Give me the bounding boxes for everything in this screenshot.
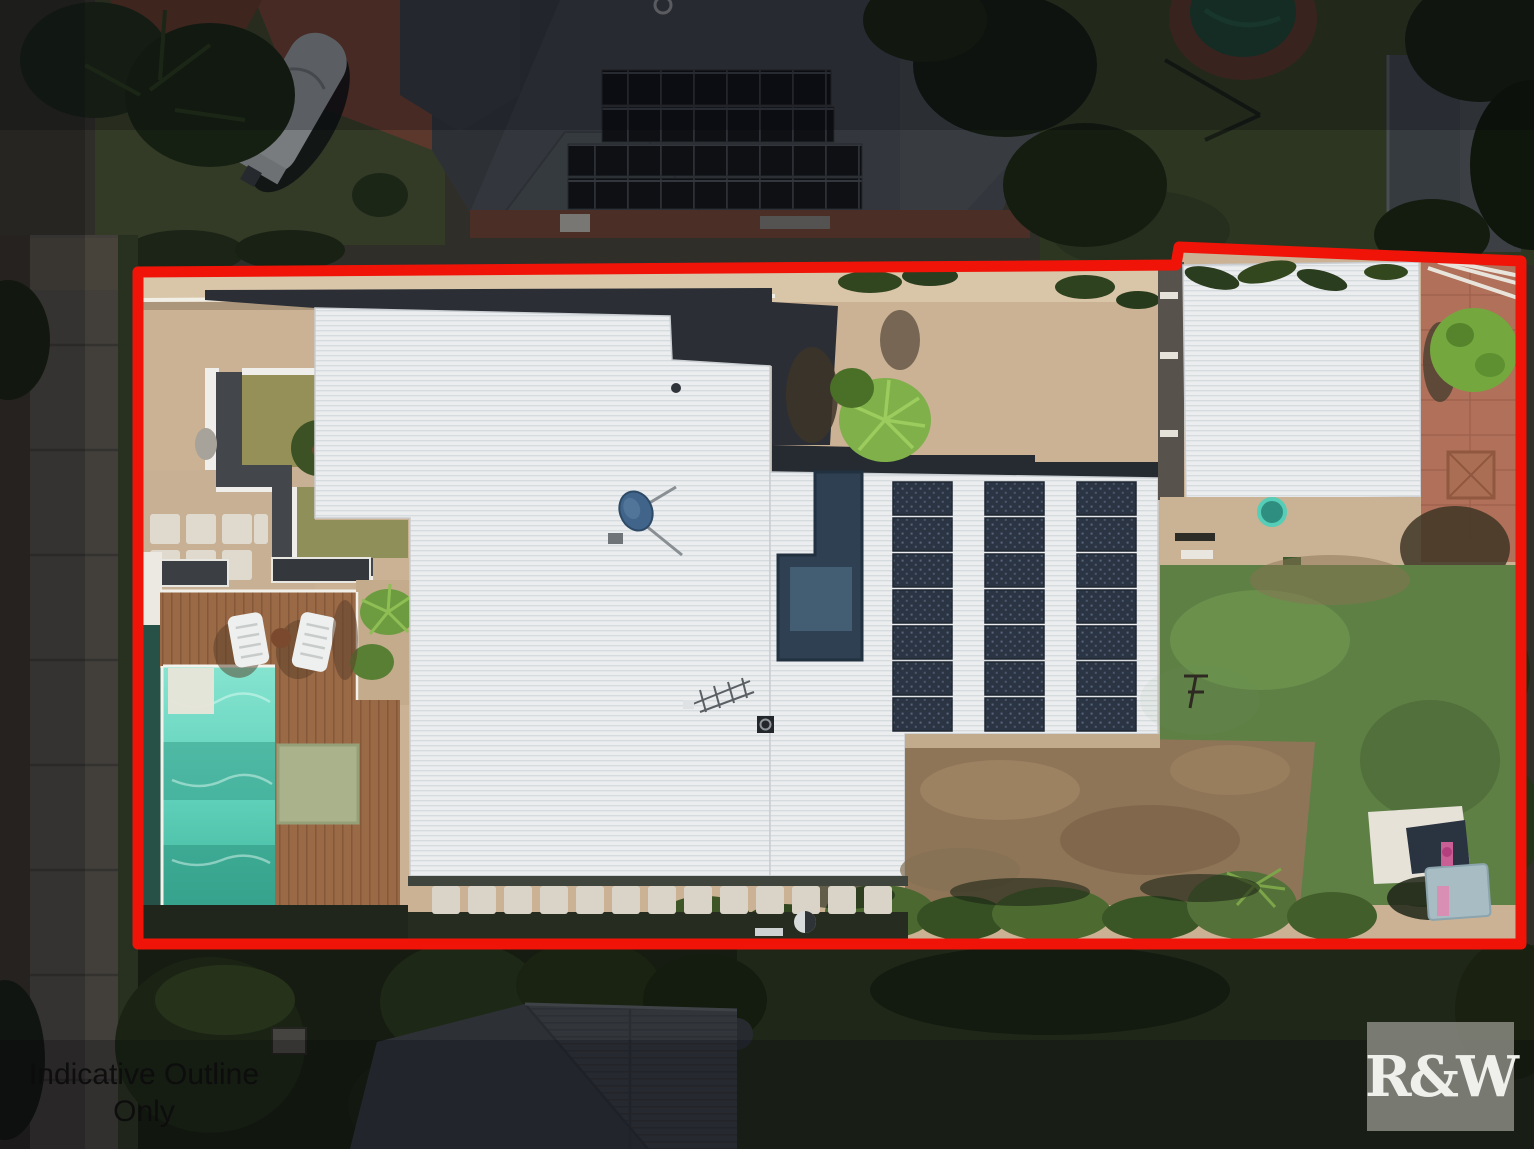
blue-tarp — [1425, 864, 1490, 920]
watermark-logo: R&W — [1367, 1022, 1514, 1131]
pool-deck-area — [160, 580, 416, 905]
spa — [1259, 499, 1285, 525]
disclaimer-line-1: Indicative Outline — [8, 1056, 280, 1093]
solar-array-main — [893, 482, 1136, 731]
disclaimer-text: Indicative Outline Only — [8, 1056, 280, 1130]
deck-table — [271, 628, 291, 648]
aerial-photo-canvas — [0, 0, 1534, 1149]
daybed-mat — [278, 745, 358, 823]
aerial-property-photo: Indicative Outline Only R&W — [0, 0, 1534, 1149]
watermark-text: R&W — [1365, 1044, 1516, 1110]
disclaimer-line-2: Only — [8, 1093, 280, 1130]
